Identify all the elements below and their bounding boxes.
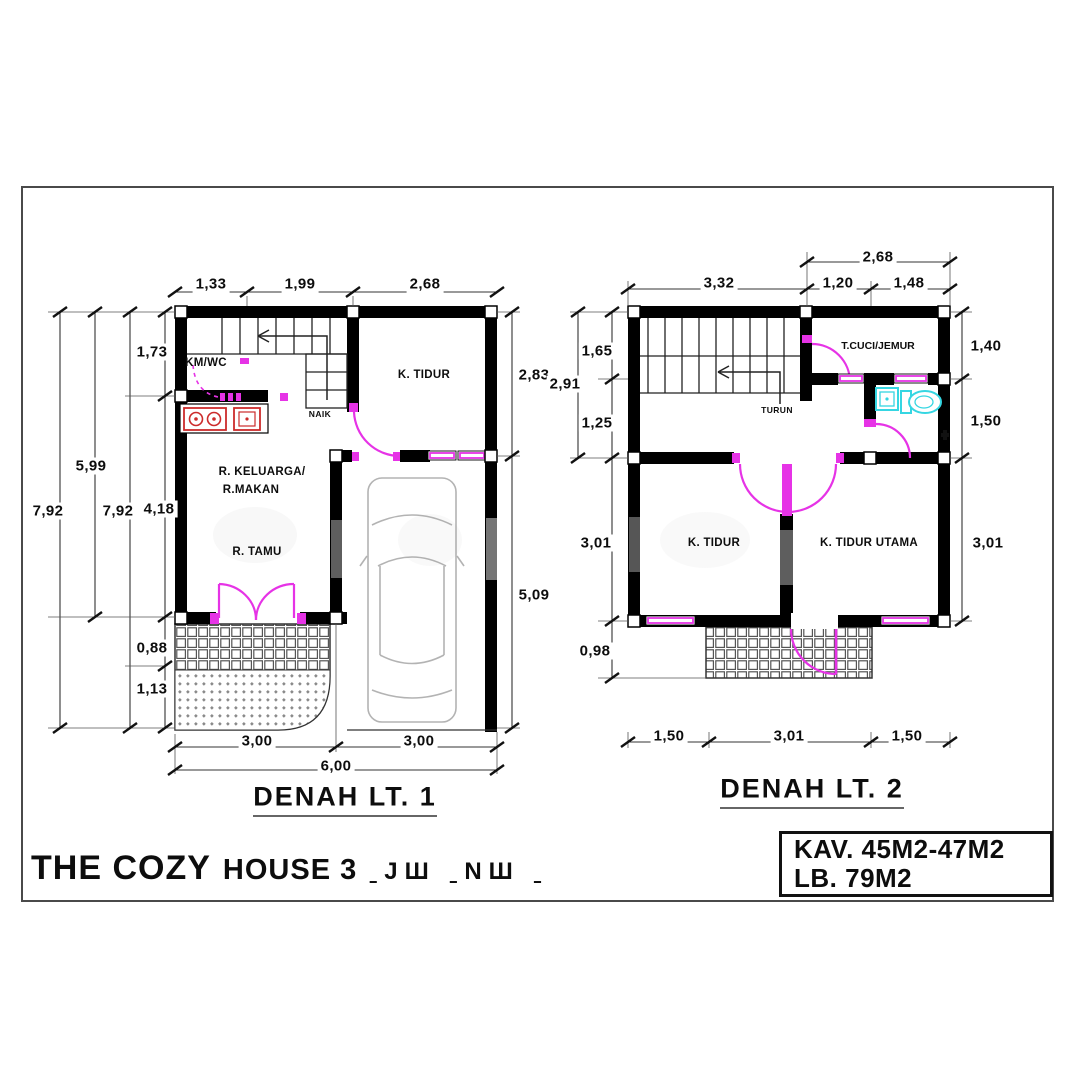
dim-label: 5,09 <box>516 587 553 604</box>
brand-glyphs: ˍЈШ ˍNШ ˍ <box>369 858 548 886</box>
dim-label: 0,98 <box>577 643 614 660</box>
room-label-bedroom1: K. TIDUR <box>398 369 450 381</box>
dim-label: 1,20 <box>820 275 857 292</box>
room-label-family: R. KELUARGA/ <box>219 466 306 478</box>
dim-label: 3,01 <box>771 728 808 745</box>
dim-label: 1,65 <box>579 343 616 360</box>
dim-label: 3,32 <box>701 275 738 292</box>
dim-label: 6,00 <box>318 758 355 775</box>
area-lb: LB. 79M2 <box>794 864 1050 893</box>
floorplan-sheet: 1,33 1,99 2,68 1,73 5,99 7,92 7,92 4,18 … <box>0 0 1080 1080</box>
dim-label: 1,50 <box>651 728 688 745</box>
dim-label: 7,92 <box>30 503 67 520</box>
dim-label: 1,73 <box>134 344 171 361</box>
dim-label: 1,33 <box>193 276 230 293</box>
dim-label: 1,25 <box>579 415 616 432</box>
room-label-master: K. TIDUR UTAMA <box>820 537 918 549</box>
project-brand: THE COZY HOUSE 3 ˍЈШ ˍNШ ˍ <box>31 849 548 888</box>
dim-label: 1,99 <box>282 276 319 293</box>
room-label-bedroom2: K. TIDUR <box>688 537 740 549</box>
dim-label: 1,48 <box>891 275 928 292</box>
brand-name: THE COZY <box>31 849 211 888</box>
stair-direction-label: TURUN <box>761 405 793 415</box>
room-label-kmwc: KM/WC <box>185 357 227 369</box>
dim-label: 3,01 <box>578 535 615 552</box>
stair-direction-label: NAIK <box>309 409 331 419</box>
area-kav: KAV. 45M2-47M2 <box>794 835 1050 864</box>
dim-label: 3,00 <box>239 733 276 750</box>
dim-label: 3,00 <box>401 733 438 750</box>
dim-label: 2,68 <box>860 249 897 266</box>
dim-label: 2,68 <box>407 276 444 293</box>
plan2-title: DENAH LT. 2 <box>720 774 904 805</box>
brand-name-2: HOUSE 3 <box>223 854 357 887</box>
dim-label: 7,92 <box>100 503 137 520</box>
dim-label: 5,99 <box>73 458 110 475</box>
room-label-dining: R.MAKAN <box>223 484 279 496</box>
dim-label: 2,91 <box>547 376 584 393</box>
room-label-laundry: T.CUCI/JEMUR <box>841 340 915 352</box>
dim-label: 4,18 <box>141 501 178 518</box>
dim-label: 1,13 <box>134 681 171 698</box>
dim-label: 1,50 <box>889 728 926 745</box>
dim-label: 1,50 <box>968 413 1005 430</box>
room-label-living: R. TAMU <box>232 546 281 558</box>
dim-label: 0,88 <box>134 640 171 657</box>
area-info-box: KAV. 45M2-47M2 LB. 79M2 <box>779 831 1053 897</box>
dim-label: 1,40 <box>968 338 1005 355</box>
plan1-title: DENAH LT. 1 <box>253 782 437 813</box>
dim-label: 3,01 <box>970 535 1007 552</box>
